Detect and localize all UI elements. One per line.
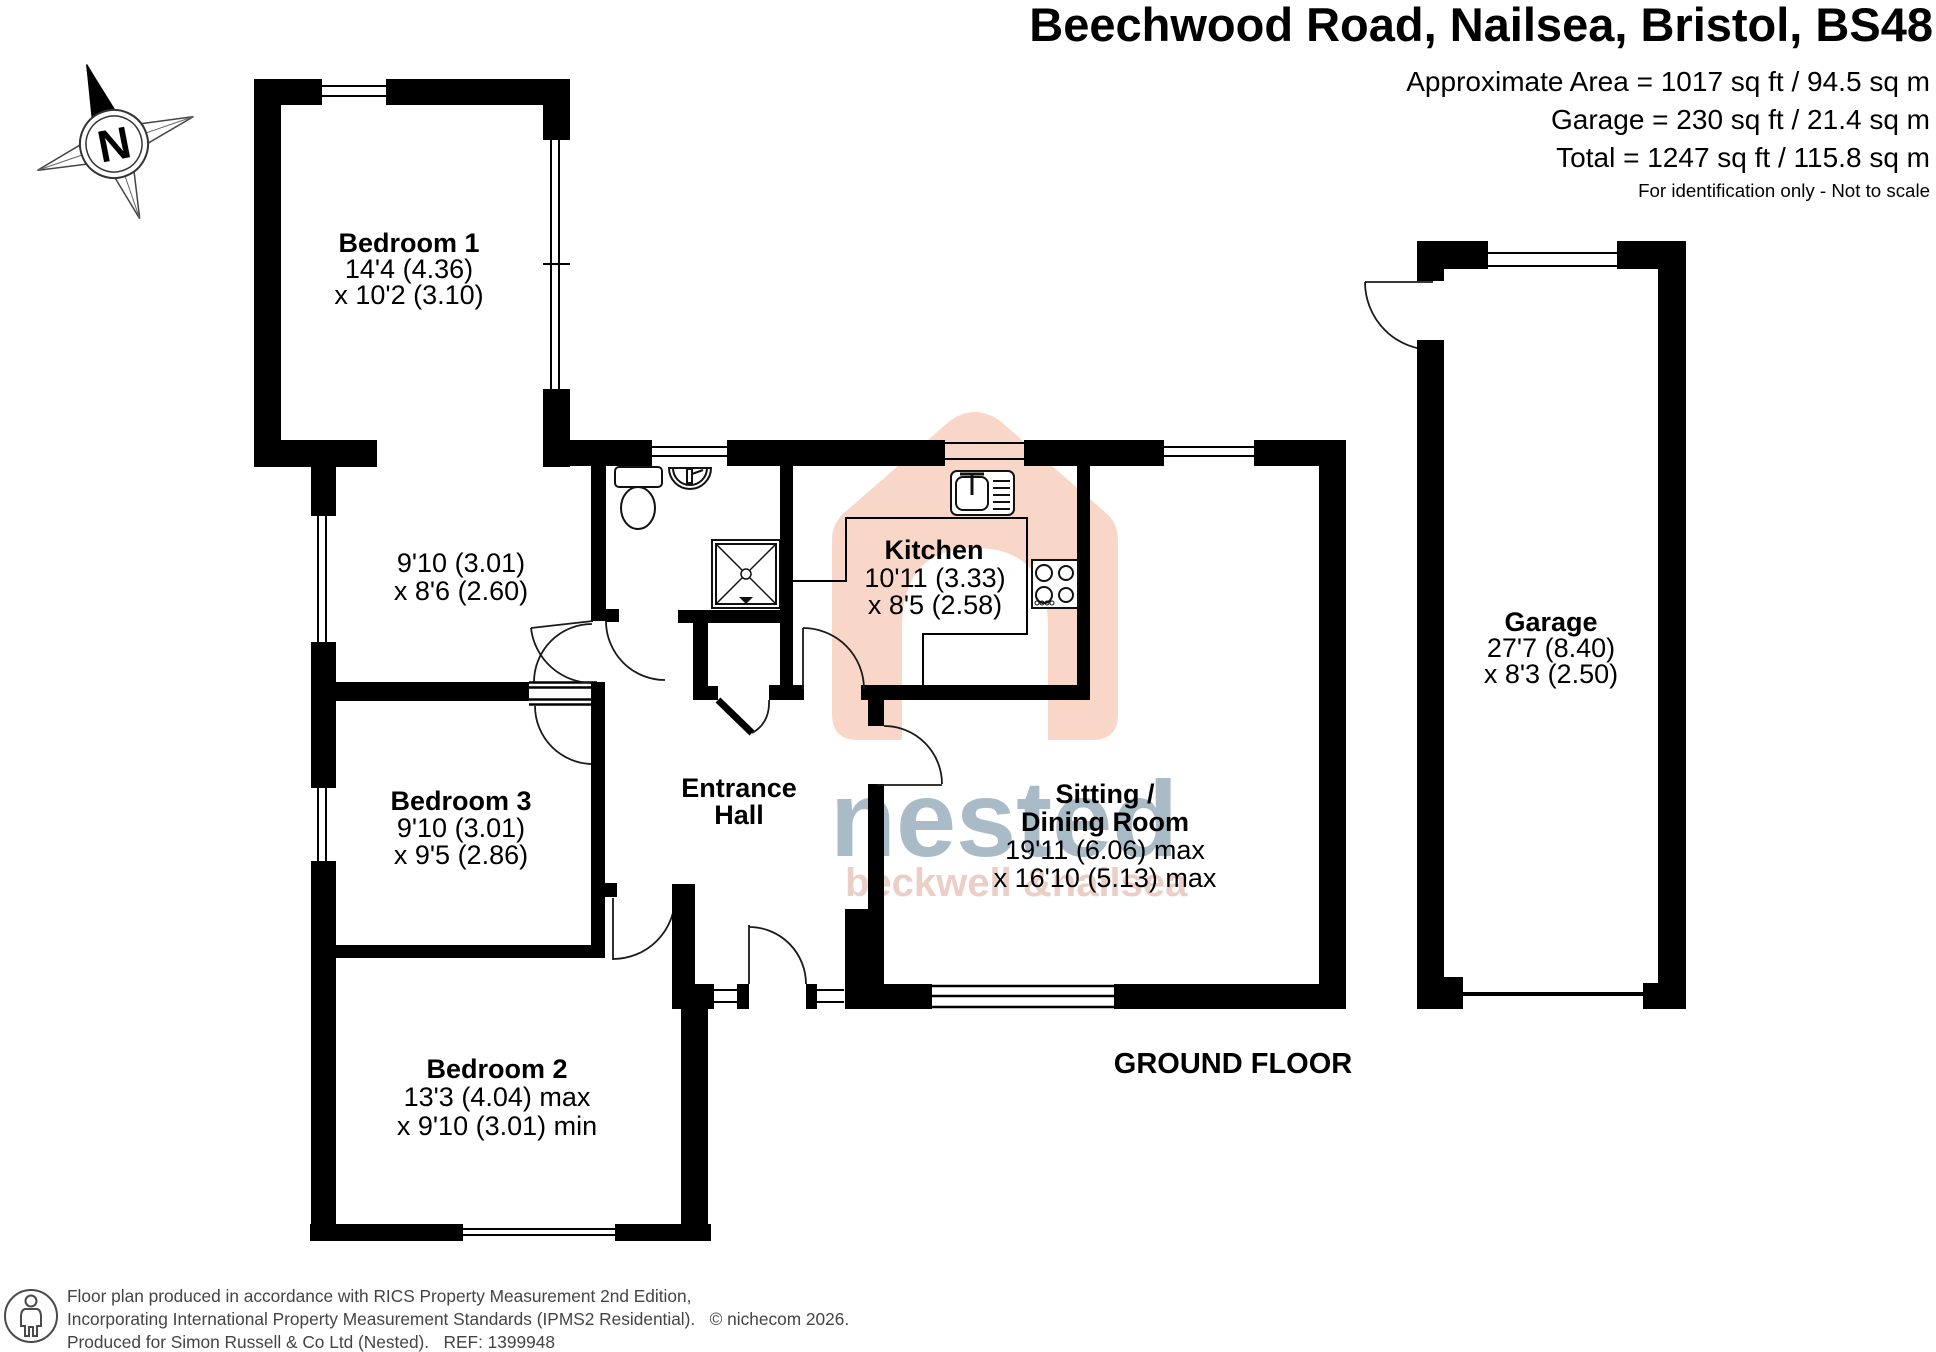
svg-text:Kitchen: Kitchen xyxy=(884,535,983,565)
svg-text:Incorporating International Pr: Incorporating International Property Mea… xyxy=(67,1309,849,1329)
svg-text:Beechwood Road, Nailsea, Brist: Beechwood Road, Nailsea, Bristol, BS48 xyxy=(1029,0,1933,51)
svg-text:Total = 1247 sq ft / 115.8 sq: Total = 1247 sq ft / 115.8 sq m xyxy=(1556,142,1930,173)
svg-text:For identification only - Not: For identification only - Not to scale xyxy=(1638,180,1930,201)
svg-text:Bedroom 3: Bedroom 3 xyxy=(390,786,531,816)
svg-text:9'10 (3.01): 9'10 (3.01) xyxy=(397,548,525,578)
svg-text:Entrance: Entrance xyxy=(681,773,797,803)
svg-text:13'3 (4.04) max: 13'3 (4.04) max xyxy=(404,1082,591,1112)
svg-text:9'10 (3.01): 9'10 (3.01) xyxy=(397,813,525,843)
svg-text:x 9'10 (3.01) min: x 9'10 (3.01) min xyxy=(397,1111,597,1141)
svg-text:Garage = 230 sq ft / 21.4 sq m: Garage = 230 sq ft / 21.4 sq m xyxy=(1551,104,1930,135)
svg-text:x 8'3 (2.50): x 8'3 (2.50) xyxy=(1484,659,1618,689)
svg-text:Produced for Simon Russell & C: Produced for Simon Russell & Co Ltd (Nes… xyxy=(67,1332,555,1352)
svg-text:Bedroom 2: Bedroom 2 xyxy=(426,1054,567,1084)
svg-text:Sitting /: Sitting / xyxy=(1056,779,1155,809)
svg-text:Approximate Area = 1017 sq ft: Approximate Area = 1017 sq ft / 94.5 sq … xyxy=(1406,66,1930,97)
svg-text:19'11 (6.06) max: 19'11 (6.06) max xyxy=(1005,835,1205,865)
svg-text:Floor plan produced in accorda: Floor plan produced in accordance with R… xyxy=(67,1286,691,1306)
svg-text:x 9'5 (2.86): x 9'5 (2.86) xyxy=(394,840,528,870)
svg-text:x 8'5 (2.58): x 8'5 (2.58) xyxy=(868,590,1002,620)
svg-text:10'11 (3.33): 10'11 (3.33) xyxy=(864,563,1005,593)
svg-text:Dining Room: Dining Room xyxy=(1021,807,1189,837)
svg-text:x 8'6 (2.60): x 8'6 (2.60) xyxy=(394,576,528,606)
svg-text:x 16'10 (5.13) max: x 16'10 (5.13) max xyxy=(994,863,1217,893)
svg-text:GROUND FLOOR: GROUND FLOOR xyxy=(1114,1048,1352,1080)
svg-text:Hall: Hall xyxy=(714,800,764,830)
svg-text:x 10'2 (3.10): x 10'2 (3.10) xyxy=(334,280,483,310)
